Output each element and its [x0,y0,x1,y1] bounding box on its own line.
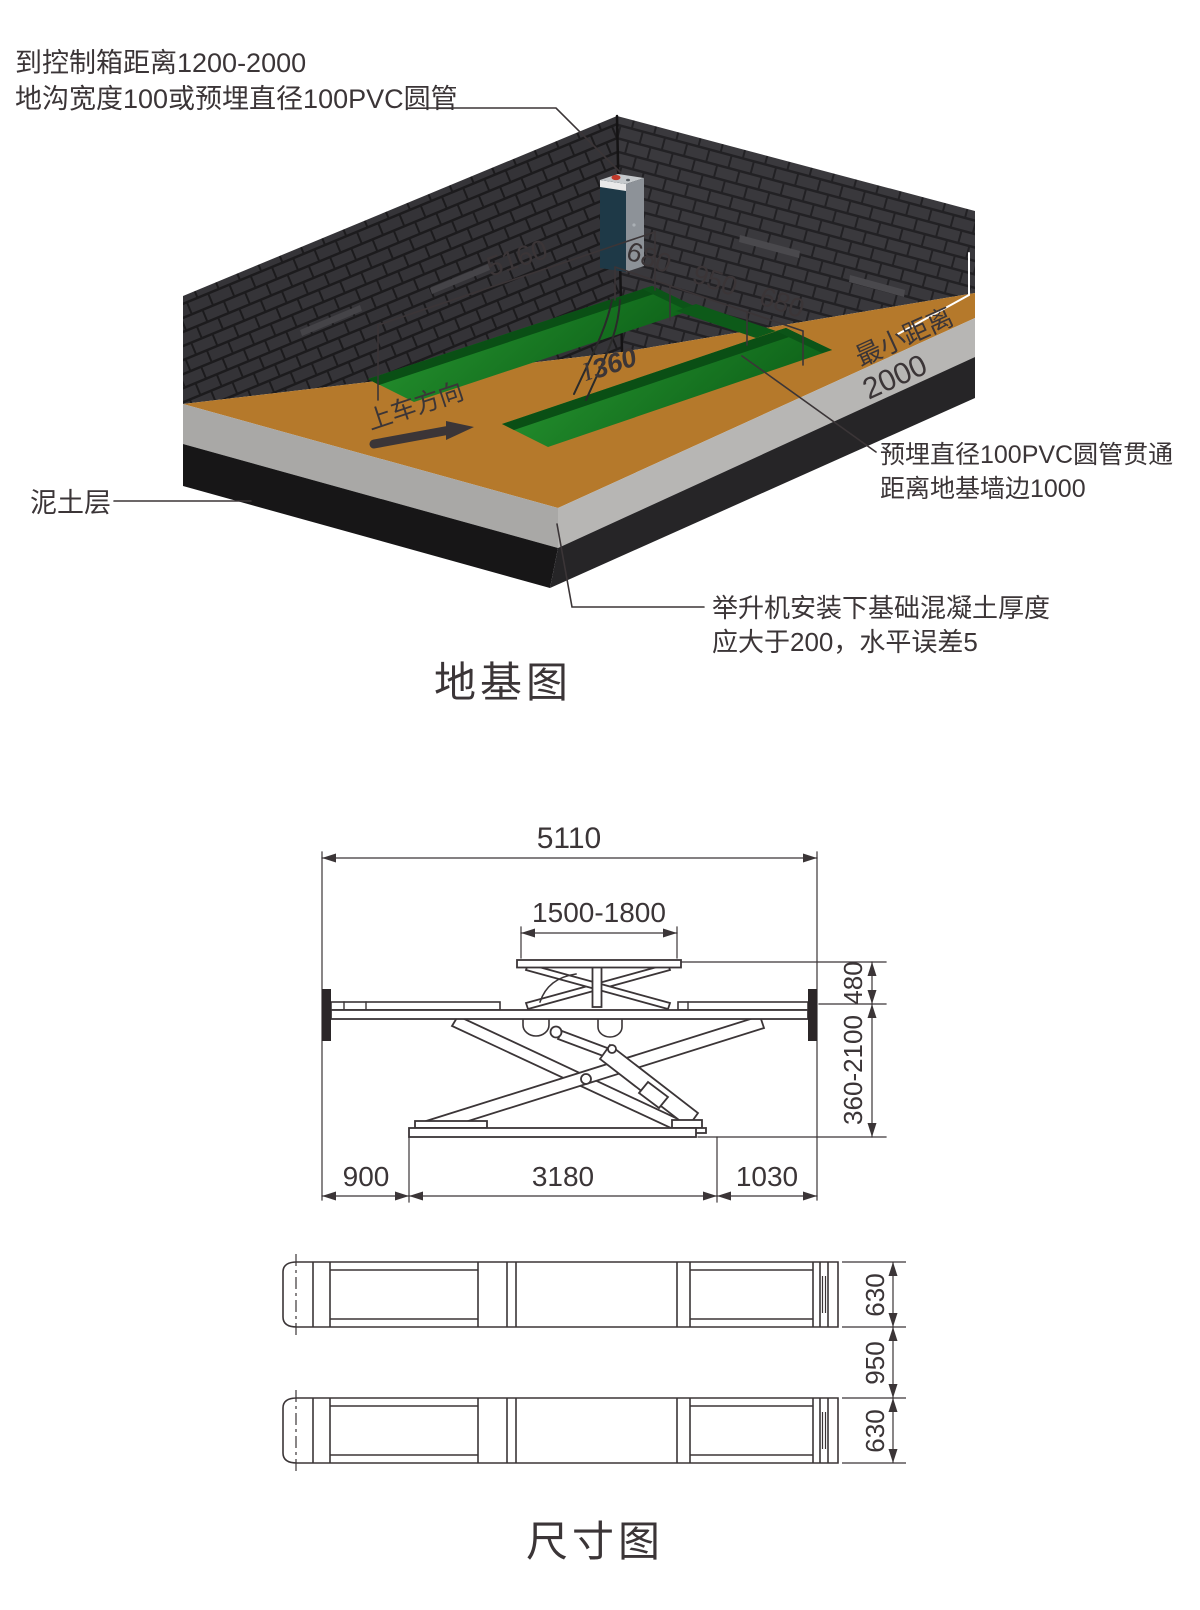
dim-platform-thickness: 480 [838,961,868,1004]
dim-platform-width-bottom: 630 [860,1409,890,1452]
cylinder-foot [672,1120,702,1128]
dim-base-length: 3180 [532,1161,594,1192]
platform-end-stop-left [322,989,331,1041]
pivot-pin [608,1045,616,1053]
dimension-view-title: 尺寸图 [526,1518,664,1565]
callout-pvc-line2: 距离地基墙边1000 [880,475,1086,503]
callout-control-box-line1: 到控制箱距离1200-2000 [15,48,306,78]
dim-platform-gap: 950 [860,1341,890,1384]
foundation-view-title: 地基图 [434,659,572,706]
platform-hook [598,1019,622,1037]
dim-upper-platform-range: 1500-1800 [532,897,666,928]
platform-beam [331,1010,808,1019]
platform-ramp-strip-left [331,1002,500,1010]
technical-drawing-canvas: 5160 680 950 680 I 360 最小距离 2000 上车方向 到控… [0,0,1200,1610]
dim-platform-width-top: 630 [860,1273,890,1316]
base-rail [409,1128,696,1137]
platform-ramp-strip-right [678,1002,808,1010]
pivot-pin [551,1027,562,1038]
dim-lift-height-range: 360-2100 [838,1015,868,1125]
platform-hook [523,1019,549,1036]
callout-pvc-line1: 预埋直径100PVC圆管贯通 [880,441,1173,469]
platform-end-stop-right [808,989,817,1041]
pivot-pin [581,1074,591,1084]
callout-control-box-line2: 地沟宽度100或预埋直径100PVC圆管 [15,84,458,114]
top-view-platform-1 [283,1254,838,1335]
top-view-platform-2 [283,1390,838,1471]
upper-platform [517,960,681,968]
dim-overall-length: 5110 [537,822,602,855]
callout-concrete-line2: 应大于200，水平误差5 [712,627,978,657]
dim-right-offset: 1030 [736,1161,798,1192]
emergency-stop-button [612,175,621,180]
dim-left-offset: 900 [343,1161,390,1192]
base-pad [415,1121,487,1128]
callout-concrete-line1: 举升机安装下基础混凝土厚度 [712,593,1050,623]
soil-label: 泥土层 [30,488,111,518]
